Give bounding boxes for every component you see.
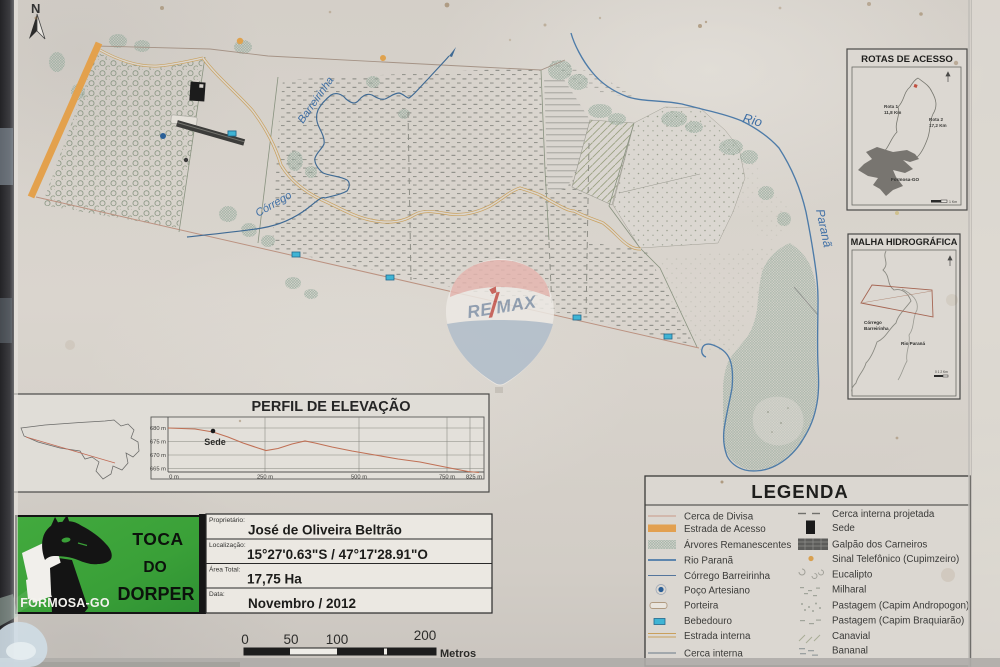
svg-text:670 m: 670 m (150, 453, 166, 459)
svg-text:Bebedouro: Bebedouro (684, 616, 732, 627)
svg-text:825 m: 825 m (466, 475, 482, 481)
svg-text:750 m: 750 m (439, 475, 455, 481)
svg-text:250 m: 250 m (257, 475, 273, 481)
svg-text:PERFIL DE ELEVAÇÃO: PERFIL DE ELEVAÇÃO (252, 397, 411, 415)
svg-text:Canavial: Canavial (832, 631, 870, 642)
svg-text:Sinal Telefônico (Cupimzeiro): Sinal Telefônico (Cupimzeiro) (832, 554, 959, 565)
svg-text:100: 100 (326, 632, 349, 647)
svg-text:15°27'0.63"S / 47°17'28.91"O: 15°27'0.63"S / 47°17'28.91"O (247, 547, 428, 562)
svg-text:FORMOSA-GO: FORMOSA-GO (20, 596, 110, 610)
svg-text:Eucalipto: Eucalipto (832, 570, 873, 581)
svg-text:Proprietário:: Proprietário: (209, 517, 245, 524)
svg-text:N: N (31, 1, 40, 16)
svg-text:17,75 Ha: 17,75 Ha (247, 572, 302, 587)
svg-text:Bananal: Bananal (832, 646, 868, 657)
svg-text:RE: RE (466, 298, 495, 322)
svg-text:Rio Paranã: Rio Paranã (684, 556, 734, 567)
svg-text:200: 200 (414, 628, 437, 643)
svg-text:Cerca de Divisa: Cerca de Divisa (684, 512, 754, 523)
svg-text:Rota 1: Rota 1 (884, 104, 898, 109)
svg-text:Porteira: Porteira (684, 601, 719, 612)
svg-text:Novembro / 2012: Novembro / 2012 (248, 596, 356, 611)
svg-text:Córrego Barreirinha: Córrego Barreirinha (684, 571, 771, 582)
svg-text:675 m: 675 m (150, 440, 166, 446)
svg-text:Sede: Sede (204, 437, 226, 447)
svg-text:Rota 2: Rota 2 (929, 117, 943, 122)
svg-text:DO: DO (143, 559, 166, 576)
svg-text:Pastagem (Capim Braquiarão): Pastagem (Capim Braquiarão) (832, 616, 964, 627)
svg-text:Estrada interna: Estrada interna (684, 631, 751, 642)
svg-text:Data:: Data: (209, 591, 225, 598)
svg-text:Localização:: Localização: (209, 542, 246, 549)
svg-text:50: 50 (283, 632, 298, 647)
svg-text:Galpão dos Carneiros: Galpão dos Carneiros (832, 540, 927, 551)
svg-text:Cerca interna projetada: Cerca interna projetada (832, 509, 935, 520)
svg-text:0 m: 0 m (169, 475, 179, 481)
svg-text:Árvores Remanescentes: Árvores Remanescentes (684, 540, 791, 551)
svg-text:Rio Paraná: Rio Paraná (901, 341, 925, 346)
svg-text:680 m: 680 m (150, 426, 166, 432)
svg-text:Formosa-GO: Formosa-GO (891, 177, 920, 182)
svg-text:0 1 2 Km: 0 1 2 Km (935, 370, 948, 374)
svg-text:Milharal: Milharal (832, 585, 866, 596)
svg-text:LEGENDA: LEGENDA (751, 481, 848, 502)
svg-text:ROTAS DE ACESSO: ROTAS DE ACESSO (861, 54, 953, 65)
svg-text:DORPER: DORPER (117, 584, 194, 604)
svg-text:Córrego: Córrego (864, 320, 882, 325)
svg-text:1 Km: 1 Km (949, 200, 957, 204)
svg-text:Poço Artesiano: Poço Artesiano (684, 586, 750, 597)
svg-text:Cerca interna: Cerca interna (684, 649, 743, 660)
svg-text:MALHA HIDROGRÁFICA: MALHA HIDROGRÁFICA (851, 236, 958, 247)
svg-text:17,2 Km: 17,2 Km (929, 123, 947, 128)
svg-text:José de Oliveira Beltrão: José de Oliveira Beltrão (248, 523, 402, 538)
svg-text:Pastagem (Capim Andropogon): Pastagem (Capim Andropogon) (832, 601, 969, 612)
svg-text:500 m: 500 m (351, 475, 367, 481)
svg-text:Estrada de Acesso: Estrada de Acesso (684, 524, 766, 535)
svg-text:0: 0 (241, 632, 249, 647)
svg-text:11,8 Km: 11,8 Km (884, 110, 901, 115)
svg-text:TOCA: TOCA (132, 529, 183, 549)
svg-text:Área Total:: Área Total: (209, 565, 241, 574)
svg-text:Sede: Sede (832, 523, 855, 534)
svg-text:Barreirinha: Barreirinha (864, 326, 889, 331)
svg-text:665 m: 665 m (150, 467, 166, 473)
